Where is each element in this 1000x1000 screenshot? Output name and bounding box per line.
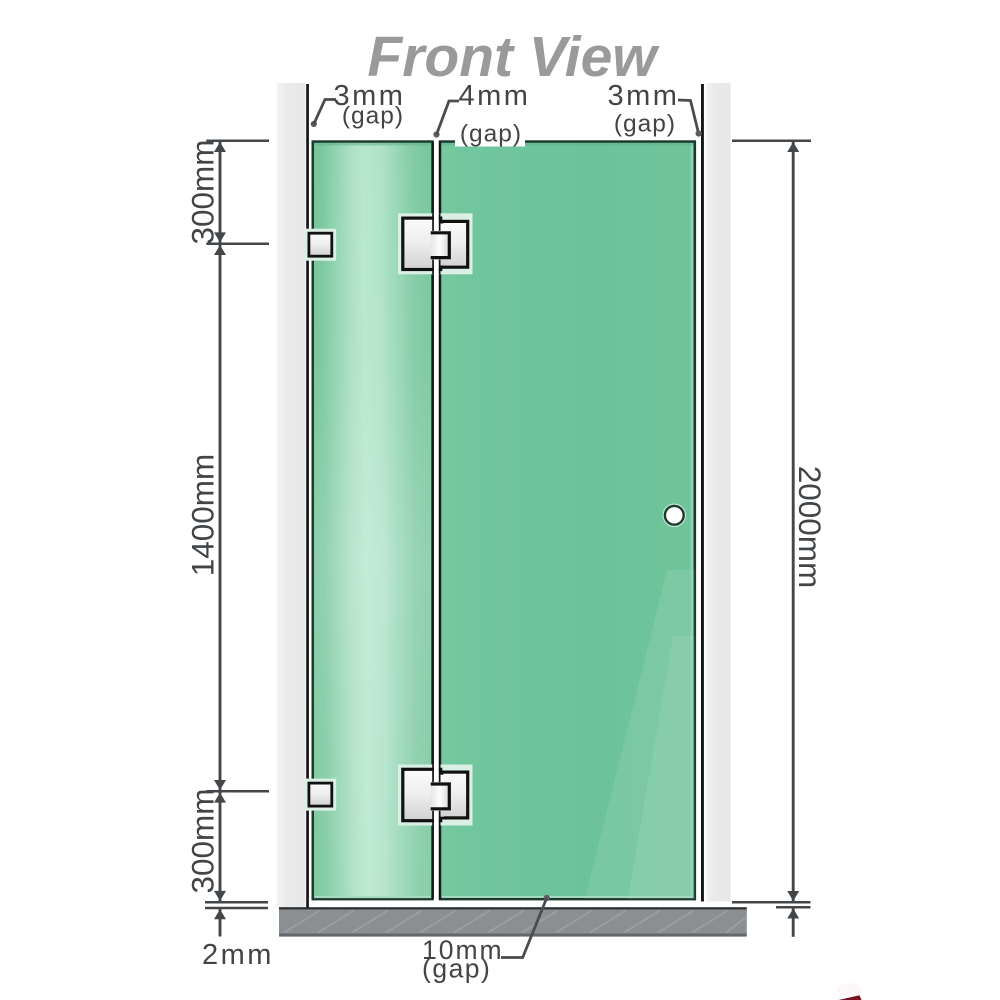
svg-text:(gap): (gap): [614, 111, 676, 138]
svg-text:300mm: 300mm: [185, 788, 221, 893]
svg-text:3mm: 3mm: [608, 80, 680, 112]
svg-text:(gap): (gap): [460, 121, 522, 148]
svg-text:2mm: 2mm: [202, 939, 274, 971]
svg-text:(gap): (gap): [422, 954, 491, 984]
svg-text:(gap): (gap): [342, 103, 404, 130]
svg-text:300mm: 300mm: [185, 139, 221, 244]
svg-text:1400mm: 1400mm: [185, 454, 221, 577]
svg-text:4mm: 4mm: [459, 80, 531, 112]
svg-text:2000mm: 2000mm: [792, 466, 828, 589]
